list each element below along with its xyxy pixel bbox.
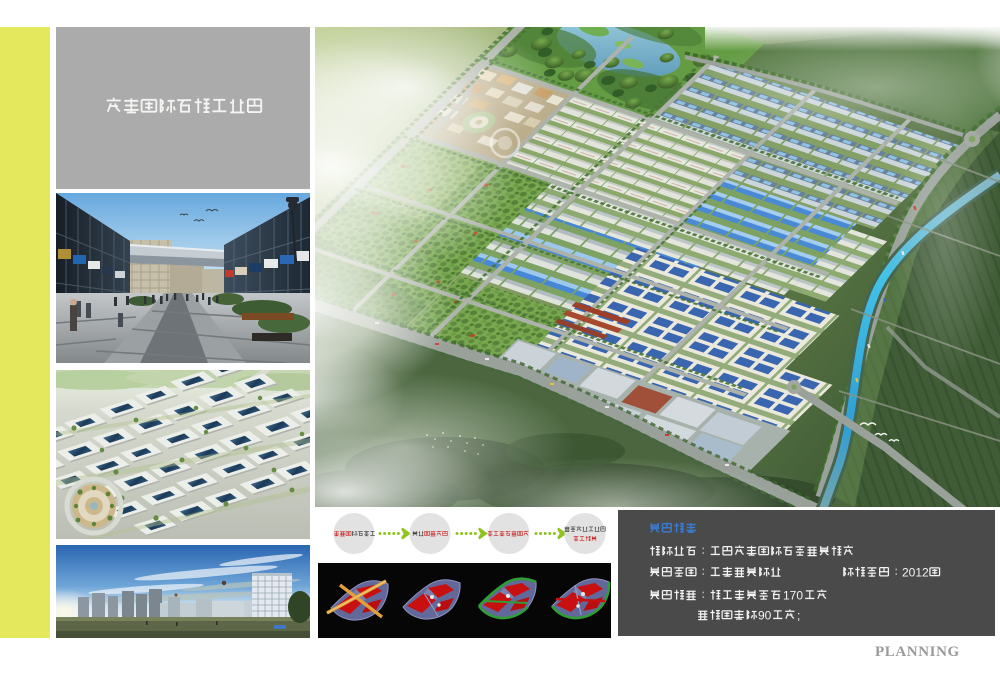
svg-text:2012: 2012 — [902, 566, 929, 580]
svg-text:170: 170 — [783, 589, 803, 603]
svg-text:90: 90 — [758, 609, 772, 623]
svg-text:;: ; — [797, 609, 800, 623]
